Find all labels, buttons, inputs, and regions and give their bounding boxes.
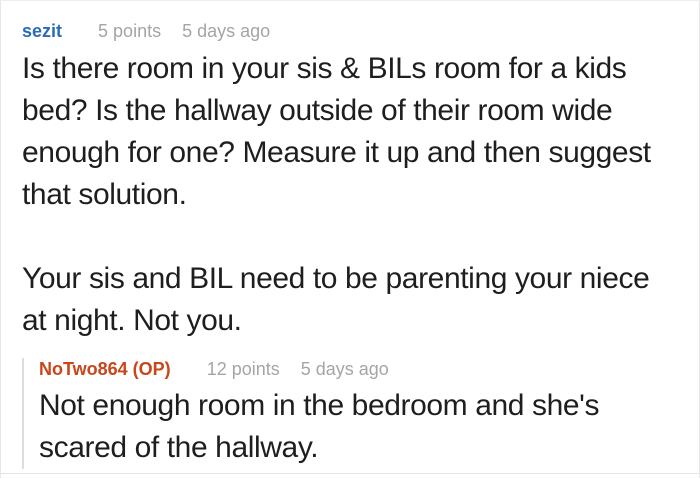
reply-comment: NoTwo864 (OP) 12 points 5 days ago Not e… [22,358,689,469]
comment-thread: sezit 5 points 5 days ago Is there room … [1,1,699,469]
comment-card: sezit 5 points 5 days ago Is there room … [0,0,700,478]
reply-timestamp: 5 days ago [301,358,389,380]
comment-timestamp: 5 days ago [182,20,270,42]
comment-points: 5 points [98,20,161,42]
comment-header: sezit 5 points 5 days ago [22,20,689,42]
reply-header: NoTwo864 (OP) 12 points 5 days ago [39,358,689,380]
reply-points: 12 points [207,358,280,380]
reply-username-link[interactable]: NoTwo864 (OP) [39,358,171,380]
comment-username-link[interactable]: sezit [22,20,62,42]
comment-body: Is there room in your sis & BILs room fo… [22,48,689,342]
comment-separator [1,473,699,474]
reply-body: Not enough room in the bedroom and she's… [39,385,689,469]
